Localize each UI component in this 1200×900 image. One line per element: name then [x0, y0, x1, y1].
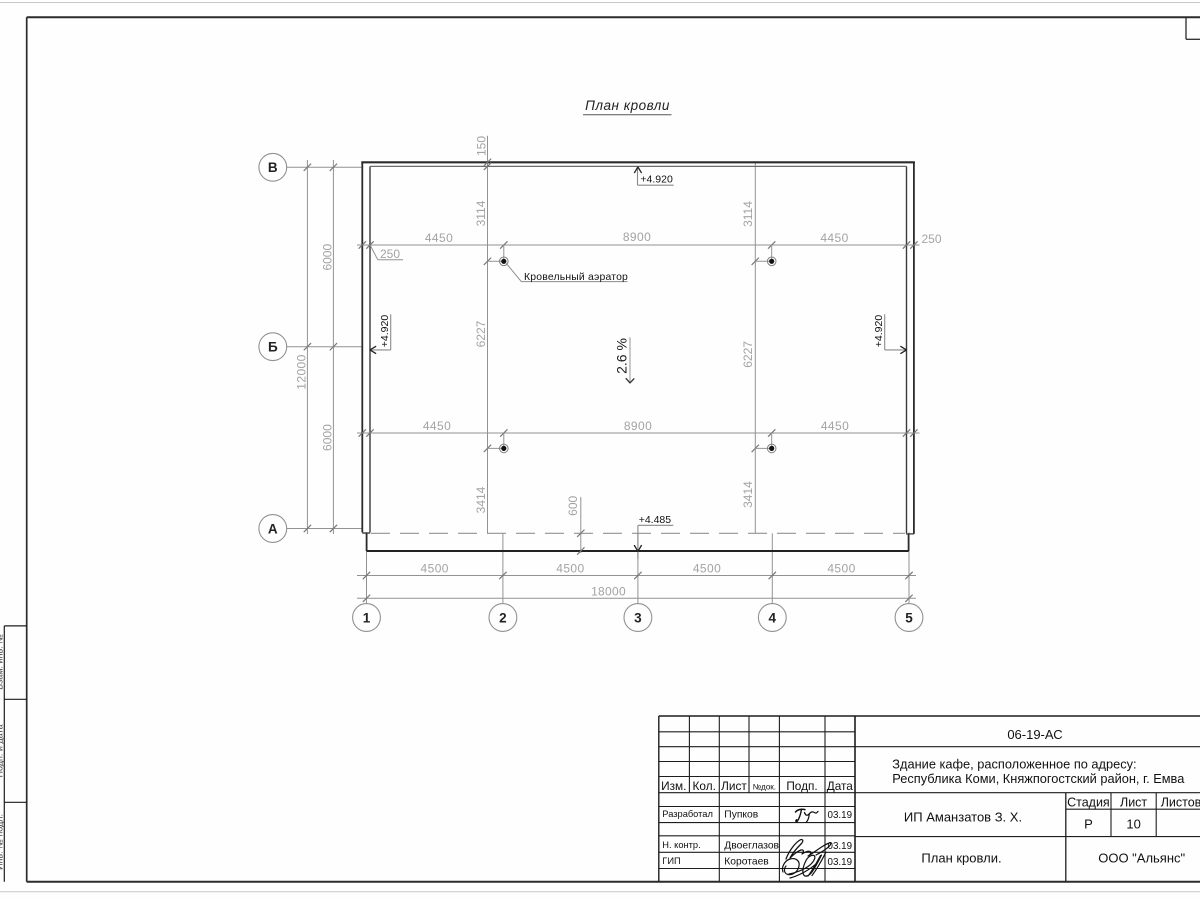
svg-text:ООО "Альянс": ООО "Альянс": [1098, 851, 1185, 866]
svg-text:В: В: [268, 160, 278, 175]
svg-text:ИП Аманзатов З. Х.: ИП Аманзатов З. Х.: [904, 810, 1022, 825]
svg-text:4500: 4500: [693, 562, 721, 576]
svg-text:Дата: Дата: [827, 779, 854, 793]
svg-text:Здание кафе, расположенное по: Здание кафе, расположенное по адресу:: [892, 756, 1136, 771]
svg-text:8900: 8900: [624, 419, 652, 433]
svg-text:8900: 8900: [623, 230, 651, 244]
svg-text:1: 1: [363, 610, 371, 625]
svg-text:№док.: №док.: [753, 783, 776, 792]
svg-text:Кровельный аэратор: Кровельный аэратор: [524, 272, 628, 283]
svg-text:6227: 6227: [741, 341, 755, 368]
svg-text:Разработал: Разработал: [662, 809, 713, 819]
svg-text:3414: 3414: [741, 481, 755, 508]
svg-text:Изм.: Изм.: [661, 779, 686, 793]
svg-text:Н. контр.: Н. контр.: [662, 840, 700, 850]
svg-text:3114: 3114: [474, 200, 488, 226]
svg-text:4450: 4450: [820, 231, 848, 245]
svg-text:5: 5: [905, 610, 913, 625]
svg-text:Лист: Лист: [721, 779, 747, 793]
svg-text:3: 3: [634, 610, 642, 625]
svg-text:03.19: 03.19: [828, 857, 853, 868]
svg-text:4450: 4450: [821, 419, 849, 433]
svg-text:Кол.: Кол.: [693, 779, 716, 793]
svg-text:06-19-АС: 06-19-АС: [1007, 727, 1062, 742]
svg-text:250: 250: [921, 232, 941, 246]
svg-text:Р: Р: [1084, 817, 1093, 832]
svg-text:6227: 6227: [474, 320, 488, 347]
svg-text:3414: 3414: [474, 486, 488, 513]
svg-text:03.19: 03.19: [828, 810, 853, 821]
svg-text:Пупков: Пупков: [724, 809, 758, 820]
svg-text:Коротаев: Коротаев: [724, 856, 769, 867]
svg-text:4500: 4500: [556, 562, 584, 576]
svg-text:4500: 4500: [421, 562, 449, 576]
svg-text:Подп.: Подп.: [786, 779, 817, 793]
svg-text:6000: 6000: [321, 244, 335, 271]
svg-text:Инв. № подл.: Инв. № подл.: [0, 814, 5, 870]
svg-text:2.6 %: 2.6 %: [614, 338, 630, 374]
svg-text:Подп. и дата: Подп. и дата: [0, 724, 5, 777]
svg-text:4450: 4450: [425, 231, 453, 245]
svg-text:3114: 3114: [741, 201, 755, 227]
svg-text:2: 2: [499, 610, 507, 625]
svg-text:12000: 12000: [295, 354, 309, 389]
svg-text:+4.920: +4.920: [640, 174, 673, 186]
svg-text:18000: 18000: [591, 585, 626, 599]
svg-text:250: 250: [380, 247, 400, 261]
svg-text:Листов: Листов: [1161, 795, 1200, 809]
svg-text:10: 10: [1126, 817, 1140, 832]
svg-text:План кровли: План кровли: [585, 98, 670, 113]
svg-text:Лист: Лист: [1120, 795, 1147, 809]
svg-text:4: 4: [769, 610, 777, 625]
svg-text:4450: 4450: [423, 419, 451, 433]
svg-text:150: 150: [475, 136, 489, 156]
svg-text:4500: 4500: [827, 562, 855, 576]
svg-text:Стадия: Стадия: [1067, 795, 1110, 809]
svg-text:+4.920: +4.920: [379, 315, 391, 348]
svg-text:03.19: 03.19: [828, 841, 853, 852]
svg-text:Взам. инв. №: Взам. инв. №: [0, 634, 5, 690]
svg-text:+4.920: +4.920: [873, 315, 885, 348]
svg-text:Республика Коми, Княжпогостски: Республика Коми, Княжпогостский район, г…: [892, 771, 1185, 786]
svg-text:6000: 6000: [321, 424, 335, 451]
svg-text:Двоеглазов: Двоеглазов: [724, 840, 779, 851]
svg-text:Б: Б: [268, 340, 278, 355]
svg-text:600: 600: [566, 495, 580, 515]
svg-text:План кровли.: План кровли.: [921, 851, 1001, 866]
svg-text:А: А: [268, 521, 278, 536]
svg-text:ГИП: ГИП: [662, 856, 680, 866]
svg-text:+4.485: +4.485: [639, 514, 672, 526]
